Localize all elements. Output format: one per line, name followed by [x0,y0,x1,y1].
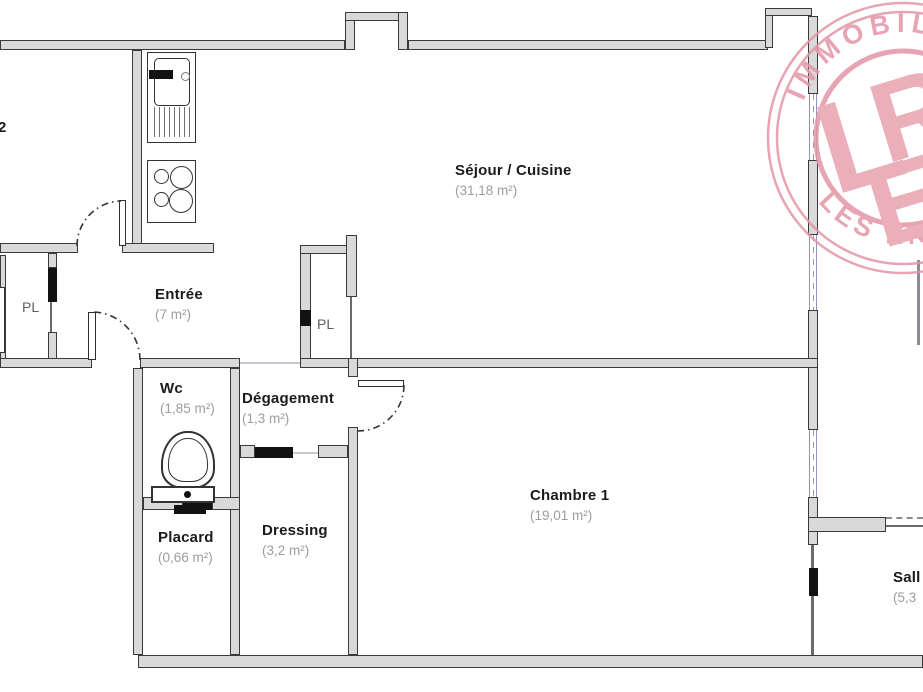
room-name: Placard [158,529,214,548]
toilet-tank [151,486,215,503]
wall-chambre1-west-bottom [348,427,358,655]
wall-degagement-dressing-b [318,445,348,458]
closet-label-left: PL [22,299,39,317]
wall-thin-salle-2 [811,596,814,655]
wall-east-3 [808,310,818,430]
burner-small-2 [154,192,169,207]
wall-chambre1-west-top [348,358,358,377]
wall-h1-c [300,358,818,368]
door-marker-pl-center [300,310,311,326]
wall-salle-top [808,517,886,532]
door-leaf-chambre1 [358,380,404,387]
room-area: (7 m²) [155,307,203,324]
wall-top-left [0,40,345,50]
wall-thin-pl-left [50,302,52,332]
floor-plan: Séjour / Cuisine (31,18 m²) Entrée (7 m²… [0,0,923,692]
room-name: Chambre 1 [530,487,609,506]
room-label-salle: Sall (5,3 [893,569,920,607]
window-salle-dash [886,517,923,519]
room-name: Séjour / Cuisine [455,162,572,181]
door-marker-salle [809,568,818,596]
wall-step-top [765,8,812,16]
room-label-chambre2-fragment: 2 [0,119,7,138]
room-label-dressing: Dressing (3,2 m²) [262,522,328,560]
radiator [0,287,5,353]
door-marker-wc-bottom [174,505,206,514]
agency-watermark: IMMOBILI LES ENFANTS B L R E [753,0,923,298]
stamp-monogram-e: E [853,129,923,273]
stamp-top-text: IMMOBILI [767,0,923,110]
wall-wc-west [133,368,143,655]
door-arc-chambre1 [358,385,404,431]
wall-entree-top-a [0,243,78,253]
toilet-bowl-inner [168,438,208,482]
door-marker-dressing [255,447,293,458]
door-arc-entrance [92,312,140,360]
wall-wc-placard-b [212,497,240,510]
closet-label-center: PL [317,316,334,334]
wall-pl-left-a [48,253,57,268]
wall-east-1 [808,16,818,94]
door-leaf-entrance [88,312,96,360]
room-area: (19,01 m²) [530,508,609,525]
wall-thin-salle-1 [811,545,814,568]
burner-large-2 [169,189,193,213]
wall-degagement-dressing-a [240,445,255,458]
room-name: Entrée [155,286,203,305]
wall-top-right [408,40,768,50]
wall-bottom [138,655,923,668]
room-name: Sall [893,569,920,588]
wall-h1-b [140,358,240,368]
sink-drainer [154,107,192,137]
window-east-2 [809,235,817,310]
room-name: Dressing [262,522,328,541]
room-label-placard: Placard (0,66 m²) [158,529,214,567]
wall-pl-center-west [300,245,311,360]
room-area: (0,66 m²) [158,550,214,567]
balcony-edge-line [917,260,920,345]
wall-h1-a [0,358,92,368]
room-label-sejour: Séjour / Cuisine (31,18 m²) [455,162,572,200]
threshold-degagement [240,362,300,364]
room-label-degagement: Dégagement (1,3 m²) [242,390,334,428]
room-area: (31,18 m²) [455,183,572,200]
room-area: (1,85 m²) [160,401,215,418]
sink-knob [181,72,190,81]
door-arc-chambre2 [77,201,121,246]
wall-pl-center-east [346,235,357,297]
door-marker-pl-left [48,268,57,302]
window-east-1 [809,94,817,160]
room-name: Dégagement [242,390,334,409]
threshold-dressing [293,452,318,454]
wall-entree-top-b [122,243,214,253]
room-label-entree: Entrée (7 m²) [155,286,203,324]
sink-bowl [154,58,190,106]
wall-wc-east [230,368,240,655]
wall-east-2 [808,160,818,235]
burner-small-1 [154,169,169,184]
door-leaf-chambre2 [119,200,126,246]
svg-text:IMMOBILI: IMMOBILI [767,0,923,110]
wall-thin-pl-center [350,297,352,358]
room-label-wc: Wc (1,85 m²) [160,380,215,418]
wall-duct-right [398,12,408,50]
stamp-monogram-r: R [856,43,923,189]
room-area: (5,3 [893,590,920,607]
room-area: (3,2 m²) [262,543,328,560]
burner-large-1 [170,166,193,189]
room-name: Wc [160,380,215,399]
stamp-monogram-l: L [800,59,919,222]
toilet-button [184,491,191,498]
window-salle-line [886,525,923,527]
window-east-3 [809,430,817,497]
sink-faucet [149,70,173,79]
room-area: (1,3 m²) [242,411,334,428]
room-label-chambre1: Chambre 1 (19,01 m²) [530,487,609,525]
wall-kitchen-west [132,50,142,247]
